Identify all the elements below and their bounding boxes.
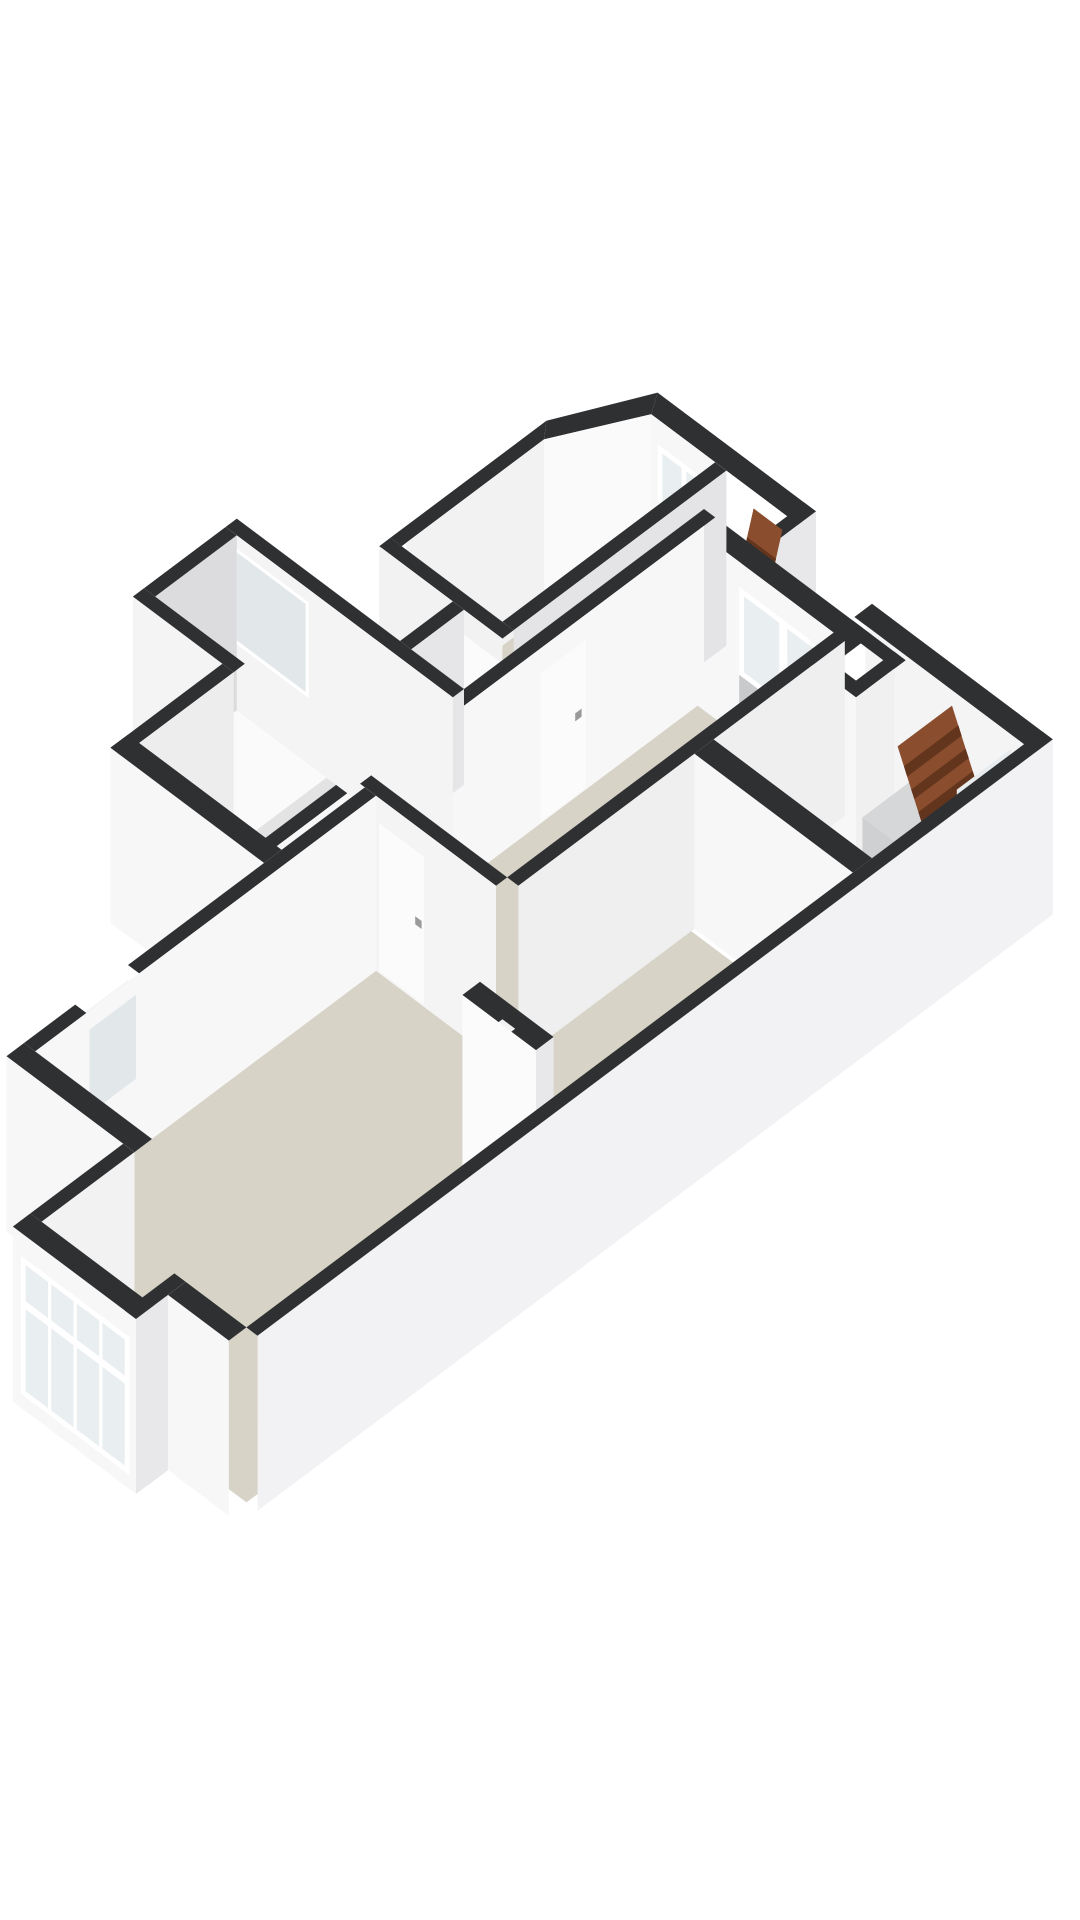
floorplan-svg bbox=[0, 0, 1080, 1920]
window-glass-bay-lower-2 bbox=[51, 1328, 73, 1427]
window-glass-bay-lower-3 bbox=[77, 1348, 99, 1447]
window-glass-bay-lower-1 bbox=[26, 1309, 48, 1408]
floorplan-canvas bbox=[0, 0, 1080, 1920]
window-glass-bay-lower-4 bbox=[102, 1367, 124, 1466]
